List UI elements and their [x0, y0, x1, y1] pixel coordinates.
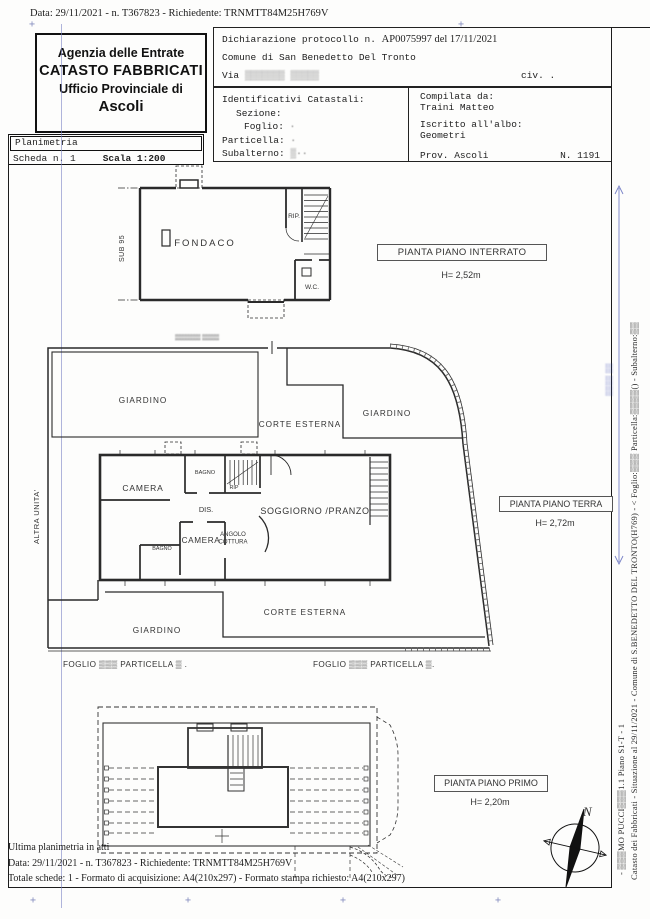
piano-terra-height: H= 2,72m — [499, 518, 611, 528]
protocol-label: Dichiarazione protocollo n. — [222, 34, 376, 45]
street-name-redacted: ▒▒▒▒▒▒ ▒▒▒▒ — [175, 334, 220, 341]
prov-label: Prov. Ascoli — [420, 150, 488, 161]
registration-mark: + — [495, 895, 501, 906]
catasto-title: CATASTO FABBRICATI — [37, 63, 205, 79]
frame-bottom-border — [8, 887, 612, 888]
compass-rose: N — [540, 800, 612, 892]
angolo-cottura-label-2: COTTURA — [219, 540, 248, 546]
planimetria-sheet-box: Planimetria Scheda n. 1 Scala 1:200 — [8, 134, 204, 165]
giardino-right-label: GIARDINO — [363, 409, 412, 418]
albo-label: Iscritto all'albo: — [420, 120, 604, 131]
rip-label: RIP. — [288, 213, 300, 220]
sezione-label: Sezione: — [236, 108, 282, 119]
plan-piano-primo-drawing — [85, 695, 430, 885]
piano-primo-title: PIANTA PIANO PRIMO — [444, 778, 538, 788]
sheet-edge-line — [611, 27, 650, 28]
bagno2-label: BAGNO — [152, 546, 171, 552]
declaration-box: Dichiarazione protocollo n. AP0075997 de… — [213, 27, 612, 88]
fondaco-label: FONDACO — [174, 238, 236, 249]
agency-name: Agenzia delle Entrate — [37, 46, 205, 60]
corte-esterna-top-label: CORTE ESTERNA — [259, 420, 341, 429]
piano-primo-height: H= 2,20m — [434, 797, 546, 807]
compilata-label: Compilata da: — [420, 92, 604, 103]
foglio-particella-right: FOGLIO ▒▒▒ PARTICELLA ▒. — [313, 660, 435, 669]
giardino-bottom-label: GIARDINO — [133, 626, 182, 635]
registration-mark: + — [185, 895, 191, 906]
cadastral-identifiers-box: Identificativi Catastali: Sezione: Fogli… — [213, 86, 612, 162]
scheda-label: Scheda n. 1 — [13, 153, 76, 164]
footer-data-line: Data: 29/11/2021 - n. T367823 - Richiede… — [8, 858, 292, 869]
civ-label: civ. . — [521, 70, 555, 81]
scan-header-line: Data: 29/11/2021 - n. T367823 - Richiede… — [30, 8, 328, 19]
subalterno-value: ▒·· — [290, 148, 307, 159]
foglio-particella-left: FOGLIO ▒▒▒ PARTICELLA ▒ . — [63, 660, 187, 669]
albo-number: N. 1191 — [560, 150, 600, 161]
foglio-label: Foglio: — [244, 121, 284, 132]
blue-annotation: ▒▒▒▒ ▒▒ — [605, 352, 617, 396]
via-redacted-value: ▒▒▒▒▒▒▒ ▒▒▒▒▒ — [245, 70, 319, 81]
plan-piano-interrato-drawing: SUB 95 FONDACO RIP. W.C. — [108, 162, 358, 324]
dis-label: DIS. — [199, 505, 213, 514]
identificativi-title: Identificativi Catastali: — [222, 93, 408, 107]
particella-value: · — [290, 135, 296, 146]
margin-text-line1: Catasto dei Fabbricati - Situazione al 2… — [629, 162, 641, 880]
altra-unita-label: ALTRA UNITA' — [32, 489, 41, 544]
soggiorno-label: SOGGIORNO /PRANZO — [260, 506, 369, 516]
margin-text-line2: - ▒▒▒MO PUCCI▒▒▒1.1 Piano S1-T - 1 — [616, 545, 628, 875]
camera2-label: CAMERA — [182, 536, 221, 545]
scanned-planimetria-page: Data: 29/11/2021 - n. T367823 - Richiede… — [0, 0, 650, 919]
cadastral-right-column: Compilata da: Traini Matteo Iscritto all… — [410, 87, 610, 161]
piano-terra-title-box: PIANTA PIANO TERRA — [499, 496, 613, 512]
protocol-value: AP0075997 del 17/11/2021 — [382, 34, 498, 45]
sub-95-label: SUB 95 — [119, 235, 126, 262]
comune-line: Comune di San Benedetto Del Tronto — [222, 52, 416, 63]
piano-terra-title: PIANTA PIANO TERRA — [510, 499, 603, 509]
footer-totale-line: Totale schede: 1 - Formato di acquisizio… — [8, 873, 405, 884]
registration-mark: + — [30, 895, 36, 906]
wc-label: W.C. — [305, 284, 319, 291]
piano-interrato-title-box: PIANTA PIANO INTERRATO — [377, 244, 547, 261]
registration-mark: + — [29, 19, 35, 30]
albo-name: Geometri — [420, 131, 604, 142]
angolo-cottura-label-1: ANGOLO — [220, 532, 246, 538]
planimetria-title: Planimetria — [10, 136, 202, 151]
giardino-topleft-label: GIARDINO — [119, 396, 168, 405]
camera1-label: CAMERA — [122, 483, 163, 493]
piano-interrato-height: H= 2,52m — [377, 270, 545, 280]
corte-esterna-bottom-label: CORTE ESTERNA — [264, 608, 346, 617]
plan-piano-terra-drawing: ▒▒▒▒▒▒ ▒▒▒▒ GIARDINO CORTE ESTERNA GIARD… — [25, 330, 505, 660]
rip-terra-label: RIP — [230, 485, 239, 491]
cadastral-left-column: Identificativi Catastali: Sezione: Fogli… — [214, 87, 409, 161]
piano-primo-title-box: PIANTA PIANO PRIMO — [434, 775, 548, 792]
compass-north-label: N — [582, 804, 593, 819]
via-label: Via — [222, 70, 239, 81]
registration-mark: + — [340, 895, 346, 906]
subalterno-label: Subalterno: — [222, 148, 285, 159]
ultima-planimetria-note: Ultima planimetria in atti — [8, 842, 109, 853]
office-label: Ufficio Provinciale di — [37, 82, 205, 96]
office-city: Ascoli — [37, 98, 205, 115]
foglio-value: · — [290, 121, 296, 132]
piano-interrato-title: PIANTA PIANO INTERRATO — [398, 247, 527, 258]
frame-left-border — [8, 134, 9, 888]
particella-label: Particella: — [222, 135, 285, 146]
compilata-name: Traini Matteo — [420, 103, 604, 114]
bagno1-label: BAGNO — [195, 470, 216, 476]
